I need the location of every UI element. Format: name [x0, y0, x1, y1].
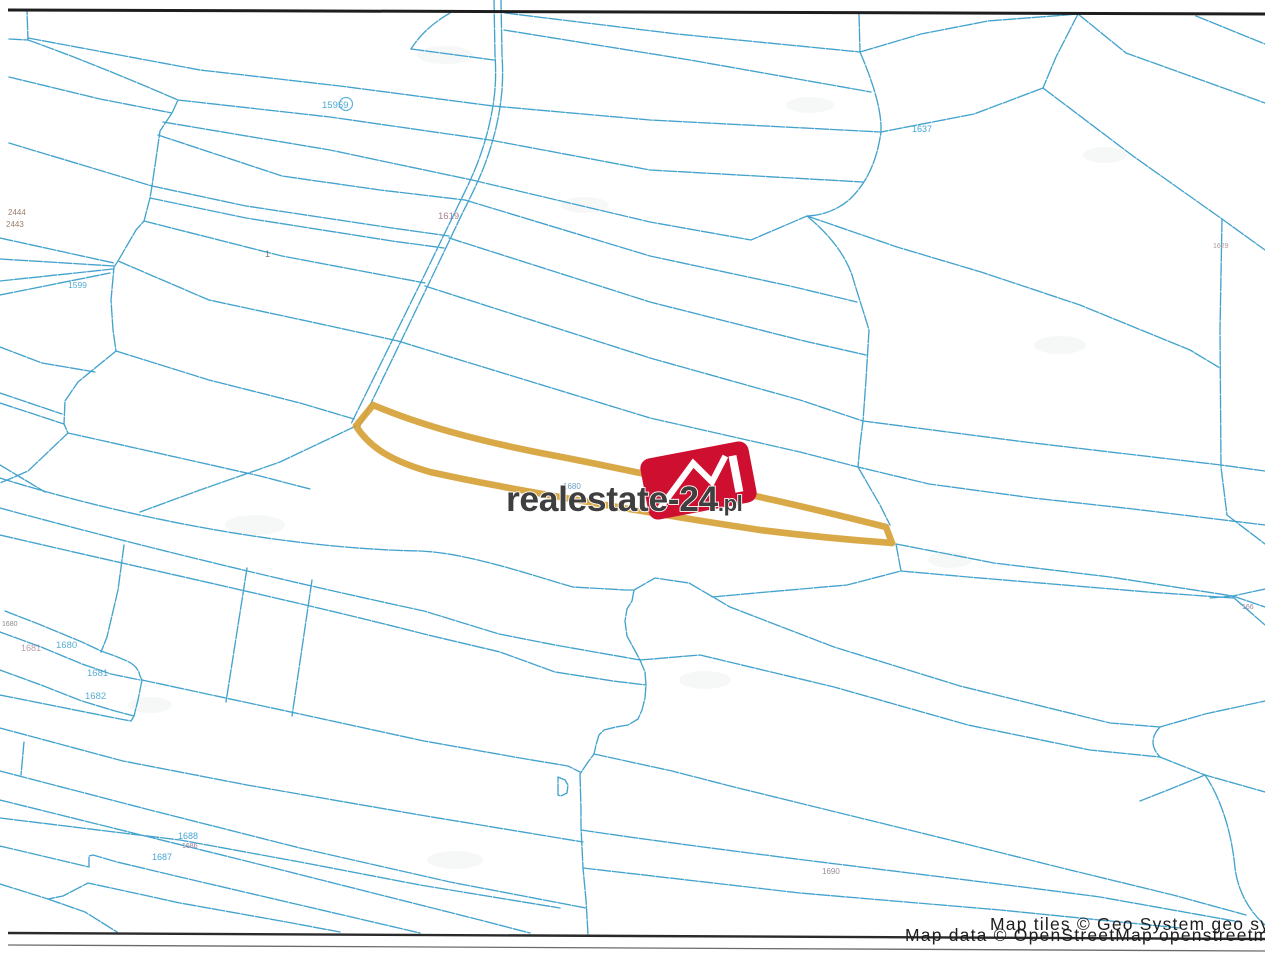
svg-text:1637: 1637: [912, 124, 932, 134]
svg-text:2444: 2444: [8, 208, 26, 217]
svg-text:1: 1: [265, 249, 270, 259]
svg-text:1688: 1688: [178, 831, 198, 841]
svg-text:1680: 1680: [2, 621, 18, 628]
svg-text:2443: 2443: [6, 220, 24, 229]
svg-text:1619: 1619: [438, 211, 459, 222]
svg-text:1686: 1686: [182, 843, 198, 850]
svg-text:Map data © OpenStreetMap opens: Map data © OpenStreetMap openstreetma: [905, 925, 1265, 945]
svg-text:1629: 1629: [1213, 243, 1229, 250]
svg-text:1680: 1680: [56, 640, 77, 651]
svg-text:15959: 15959: [322, 100, 348, 111]
svg-text:1682: 1682: [85, 691, 106, 702]
svg-text:1690: 1690: [822, 867, 840, 876]
svg-text:1681: 1681: [21, 643, 41, 653]
svg-text:realestate-24.pl: realestate-24.pl: [506, 479, 742, 519]
svg-text:1687: 1687: [152, 852, 172, 862]
svg-text:166: 166: [1242, 604, 1254, 611]
svg-text:1599: 1599: [68, 280, 87, 290]
svg-text:1681: 1681: [87, 668, 108, 679]
